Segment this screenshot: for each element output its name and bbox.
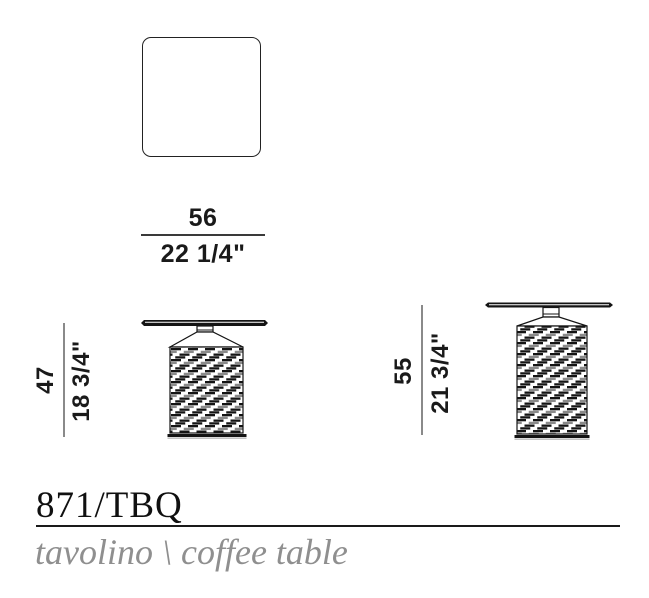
table-base-houndstooth [170,347,243,433]
width-dimension-line [141,234,265,236]
table-cone [170,332,243,347]
table-cone [517,317,587,326]
width-dimension-inches: 22 1/4" [161,240,246,269]
product-subtitle: tavolino \ coffee table [35,533,348,573]
height-left-dimension-line [63,323,65,437]
spec-sheet: 56 22 1/4" 47 18 3/4" [0,0,649,598]
height-right-dimension-line [421,305,423,435]
table-foot [168,434,247,437]
coffee-table-55-side-view-drawing [479,298,619,444]
table-foot-shadow [168,438,247,439]
table-foot [515,435,590,438]
title-rule [36,525,620,527]
coffee-table-47-side-view-drawing [134,315,274,445]
height-left-dimension-inches: 18 3/4" [68,340,96,422]
table-top-view-drawing [142,37,261,157]
width-dimension-cm: 56 [189,204,218,233]
product-code: 871/TBQ [36,487,183,524]
table-foot-shadow [515,439,590,440]
tabletop-slab [141,320,268,326]
table-neck [543,308,559,318]
height-right-dimension-cm: 55 [390,357,418,385]
height-right-dimension-inches: 21 3/4" [427,332,455,414]
height-left-dimension-cm: 47 [32,366,60,394]
table-base-houndstooth [517,326,587,434]
table-neck [197,326,213,332]
